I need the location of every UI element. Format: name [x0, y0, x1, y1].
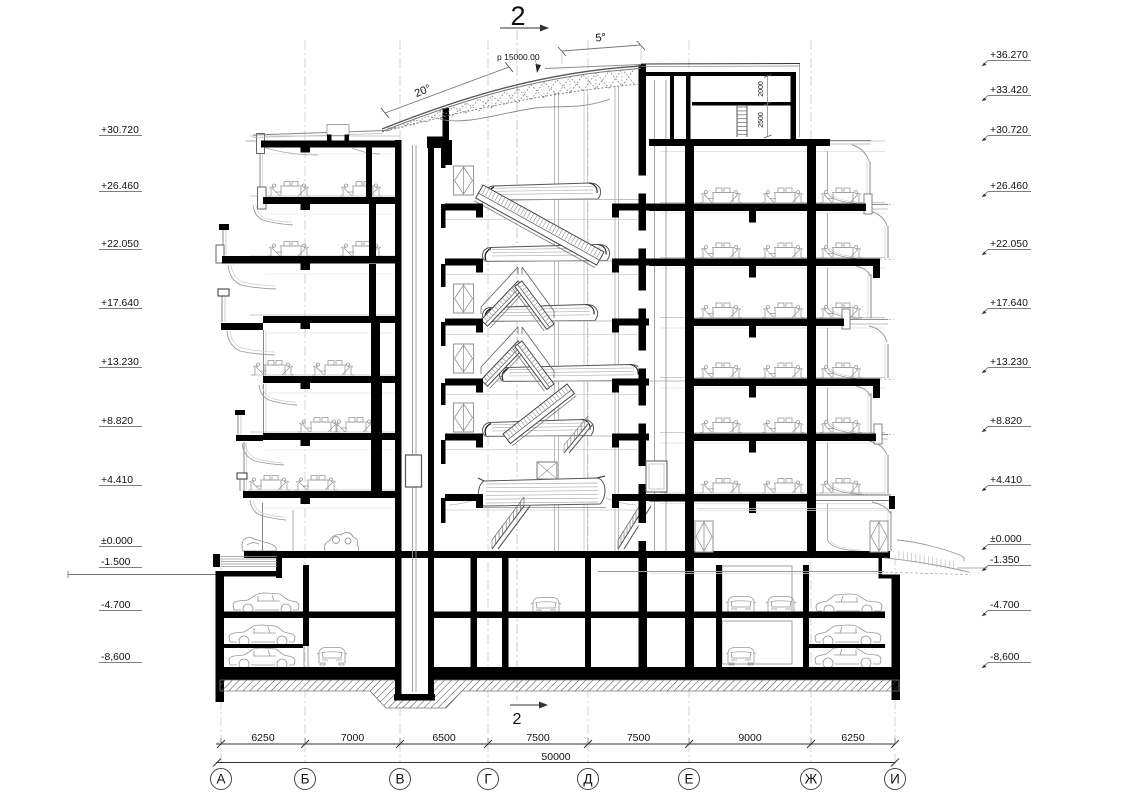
svg-text:+30.720: +30.720: [101, 125, 139, 136]
svg-text:5°: 5°: [595, 32, 607, 45]
svg-text:9000: 9000: [738, 732, 762, 744]
svg-text:+36.270: +36.270: [990, 50, 1028, 61]
svg-text:6250: 6250: [841, 732, 865, 744]
svg-text:2000: 2000: [758, 81, 765, 97]
svg-text:-1.500: -1.500: [101, 557, 131, 568]
svg-text:-8,600: -8,600: [990, 652, 1020, 663]
svg-text:+4.410: +4.410: [101, 475, 133, 486]
svg-text:+13.230: +13.230: [101, 357, 139, 368]
svg-text:-4.700: -4.700: [101, 600, 131, 611]
svg-text:+13.230: +13.230: [990, 357, 1028, 368]
svg-text:И: И: [890, 772, 900, 787]
svg-text:Г: Г: [484, 772, 492, 787]
svg-text:+17.640: +17.640: [101, 298, 139, 309]
svg-text:+8.820: +8.820: [101, 416, 133, 427]
svg-text:+26.460: +26.460: [990, 181, 1028, 192]
svg-text:50000: 50000: [541, 751, 570, 763]
svg-text:-8,600: -8,600: [101, 652, 131, 663]
svg-text:+33.420: +33.420: [990, 85, 1028, 96]
svg-text:7500: 7500: [627, 732, 651, 744]
svg-text:7500: 7500: [526, 732, 550, 744]
svg-text:±0.000: ±0.000: [990, 534, 1022, 545]
svg-text:+30.720: +30.720: [990, 125, 1028, 136]
svg-text:+8.820: +8.820: [990, 416, 1022, 427]
svg-text:+26.460: +26.460: [101, 181, 139, 192]
svg-text:+4.410: +4.410: [990, 475, 1022, 486]
svg-text:2: 2: [513, 711, 522, 728]
svg-text:±0.000: ±0.000: [101, 536, 133, 547]
svg-text:7000: 7000: [341, 732, 365, 744]
svg-text:Д: Д: [583, 772, 592, 787]
svg-text:+17.640: +17.640: [990, 298, 1028, 309]
svg-text:2500: 2500: [758, 112, 765, 128]
svg-text:6500: 6500: [432, 732, 456, 744]
svg-text:+22.050: +22.050: [101, 239, 139, 250]
svg-text:+22.050: +22.050: [990, 239, 1028, 250]
svg-text:6250: 6250: [251, 732, 275, 744]
svg-text:2: 2: [510, 1, 525, 31]
svg-text:Ж: Ж: [805, 772, 818, 787]
svg-text:-4.700: -4.700: [990, 600, 1020, 611]
svg-text:А: А: [216, 772, 225, 787]
svg-text:В: В: [395, 772, 404, 787]
svg-text:-1.350: -1.350: [990, 555, 1020, 566]
svg-text:Е: Е: [684, 772, 693, 787]
svg-text:Б: Б: [301, 772, 310, 787]
